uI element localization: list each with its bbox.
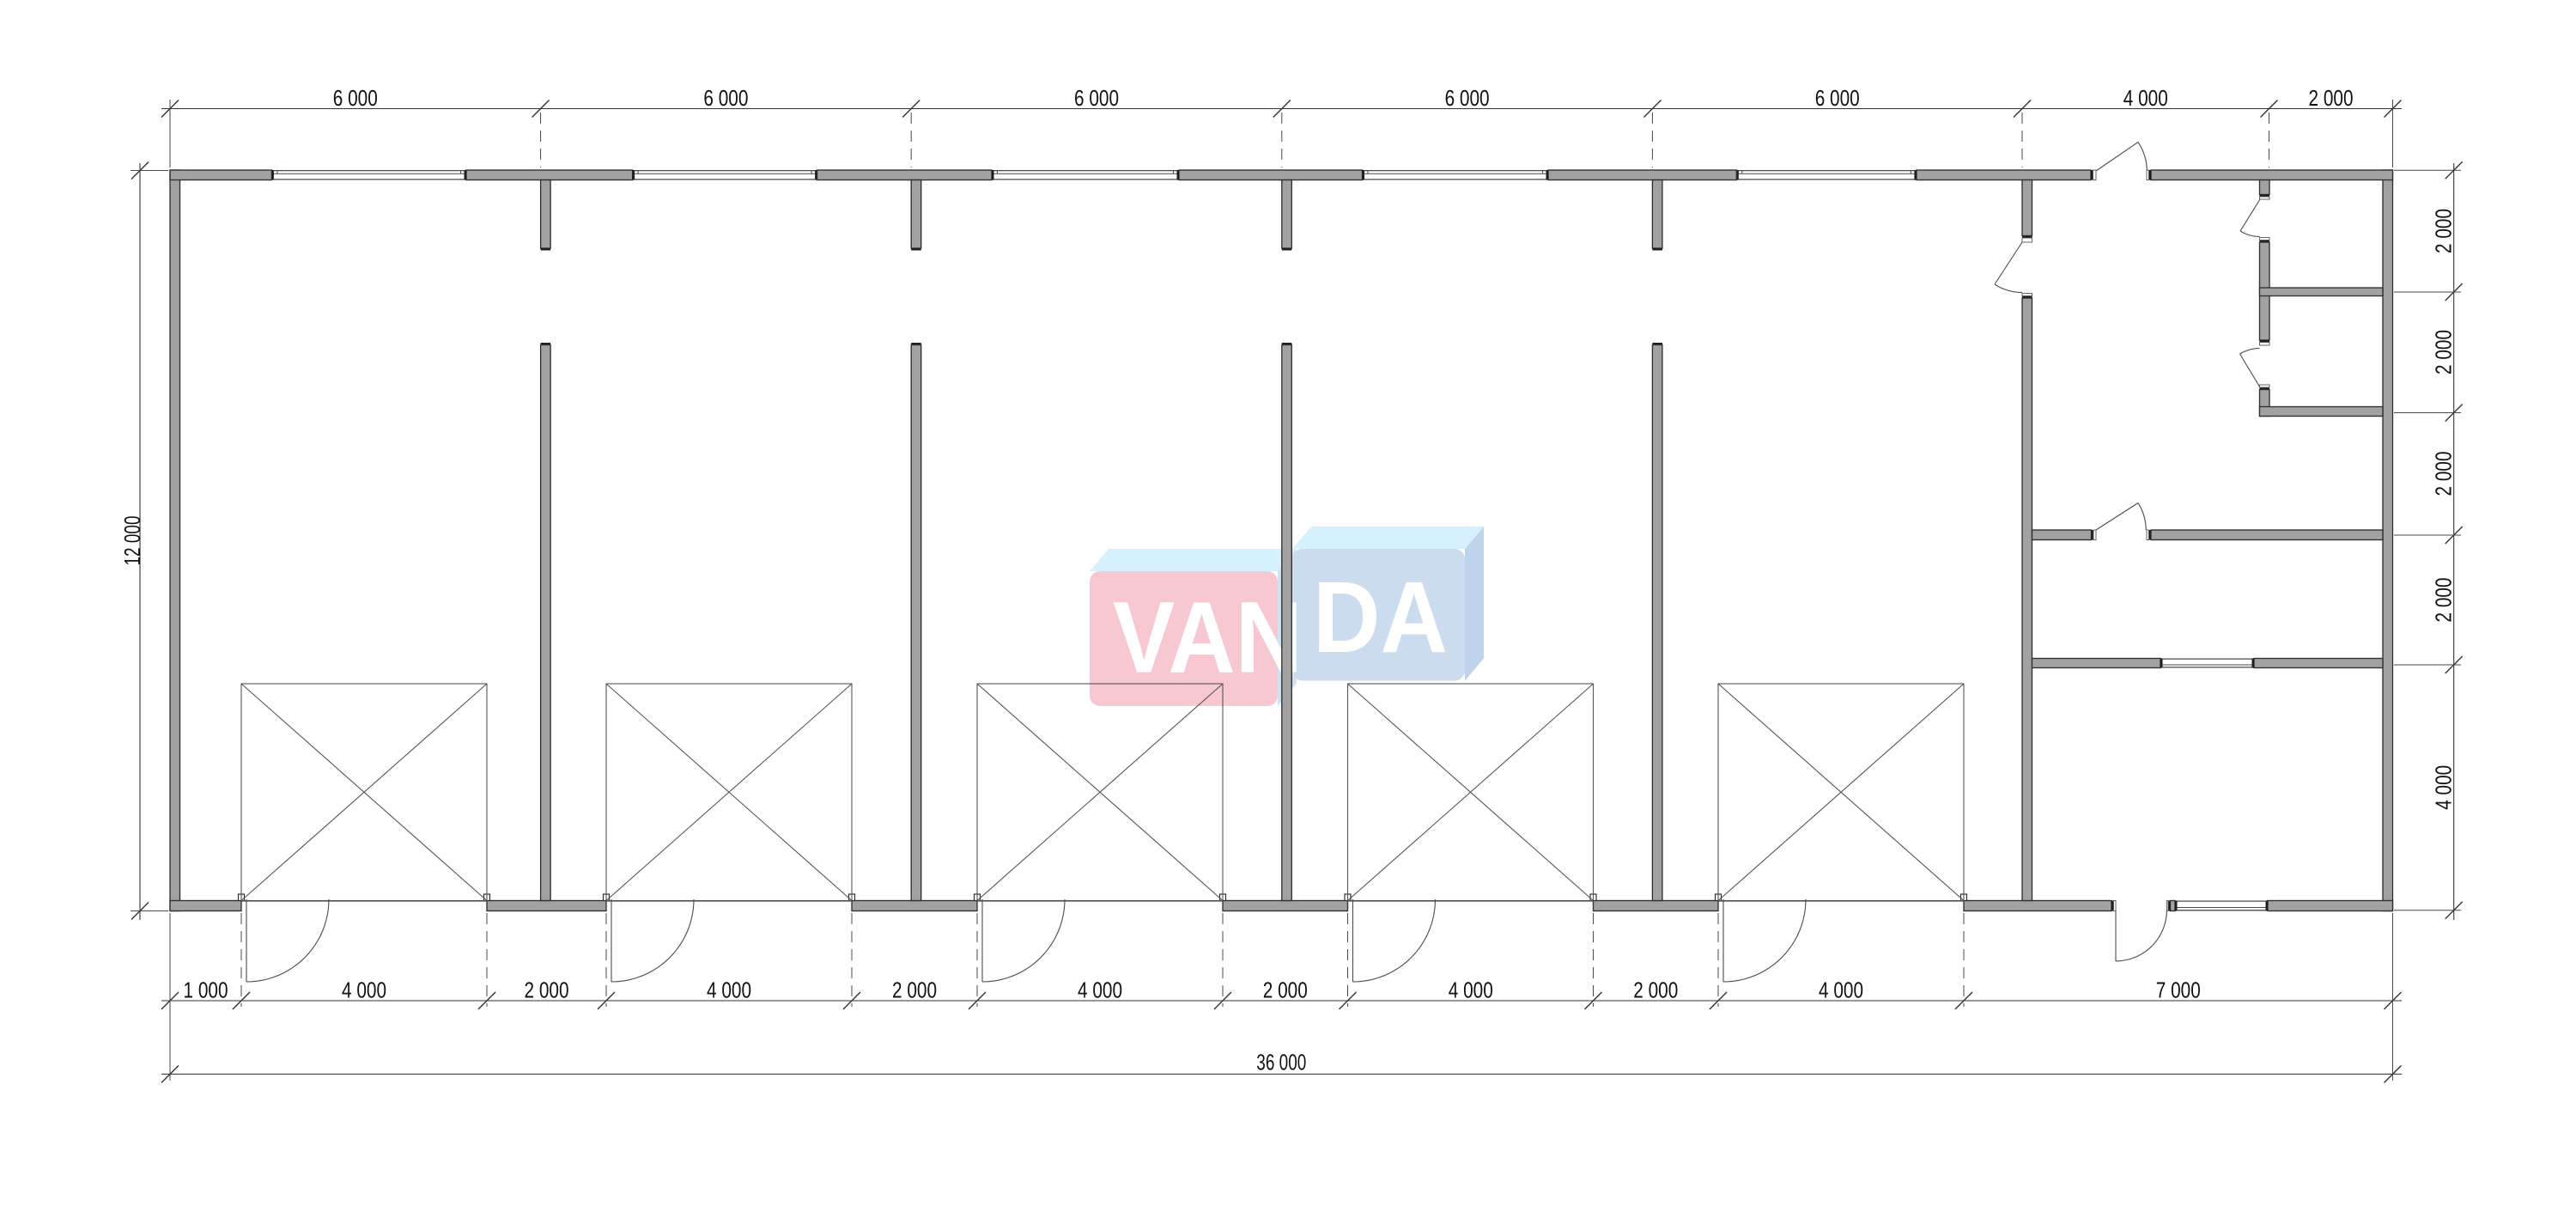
svg-text:6 000: 6 000 (1445, 87, 1490, 111)
svg-text:4 000: 4 000 (2432, 765, 2456, 810)
svg-text:6 000: 6 000 (1074, 87, 1119, 111)
svg-text:36 000: 36 000 (1256, 1051, 1306, 1075)
svg-text:2 000: 2 000 (525, 979, 569, 1003)
svg-text:12 000: 12 000 (121, 516, 145, 566)
svg-text:1 000: 1 000 (184, 979, 228, 1003)
svg-text:4 000: 4 000 (1078, 979, 1122, 1003)
svg-text:6 000: 6 000 (1815, 87, 1860, 111)
svg-text:VAN: VAN (1113, 582, 1303, 695)
svg-text:2 000: 2 000 (1633, 979, 1678, 1003)
svg-text:2 000: 2 000 (2432, 452, 2456, 496)
svg-text:2 000: 2 000 (1263, 979, 1308, 1003)
svg-text:6 000: 6 000 (333, 87, 378, 111)
svg-text:4 000: 4 000 (2123, 87, 2168, 111)
svg-text:2 000: 2 000 (2432, 578, 2456, 623)
svg-text:DA: DA (1313, 561, 1448, 674)
svg-text:2 000: 2 000 (2432, 330, 2456, 375)
svg-text:2 000: 2 000 (2432, 209, 2456, 253)
svg-text:4 000: 4 000 (1449, 979, 1493, 1003)
svg-text:4 000: 4 000 (1819, 979, 1863, 1003)
svg-text:2 000: 2 000 (892, 979, 937, 1003)
svg-text:6 000: 6 000 (703, 87, 748, 111)
svg-text:2 000: 2 000 (2309, 87, 2354, 111)
svg-text:4 000: 4 000 (707, 979, 751, 1003)
svg-text:7 000: 7 000 (2156, 979, 2201, 1003)
svg-text:4 000: 4 000 (342, 979, 386, 1003)
